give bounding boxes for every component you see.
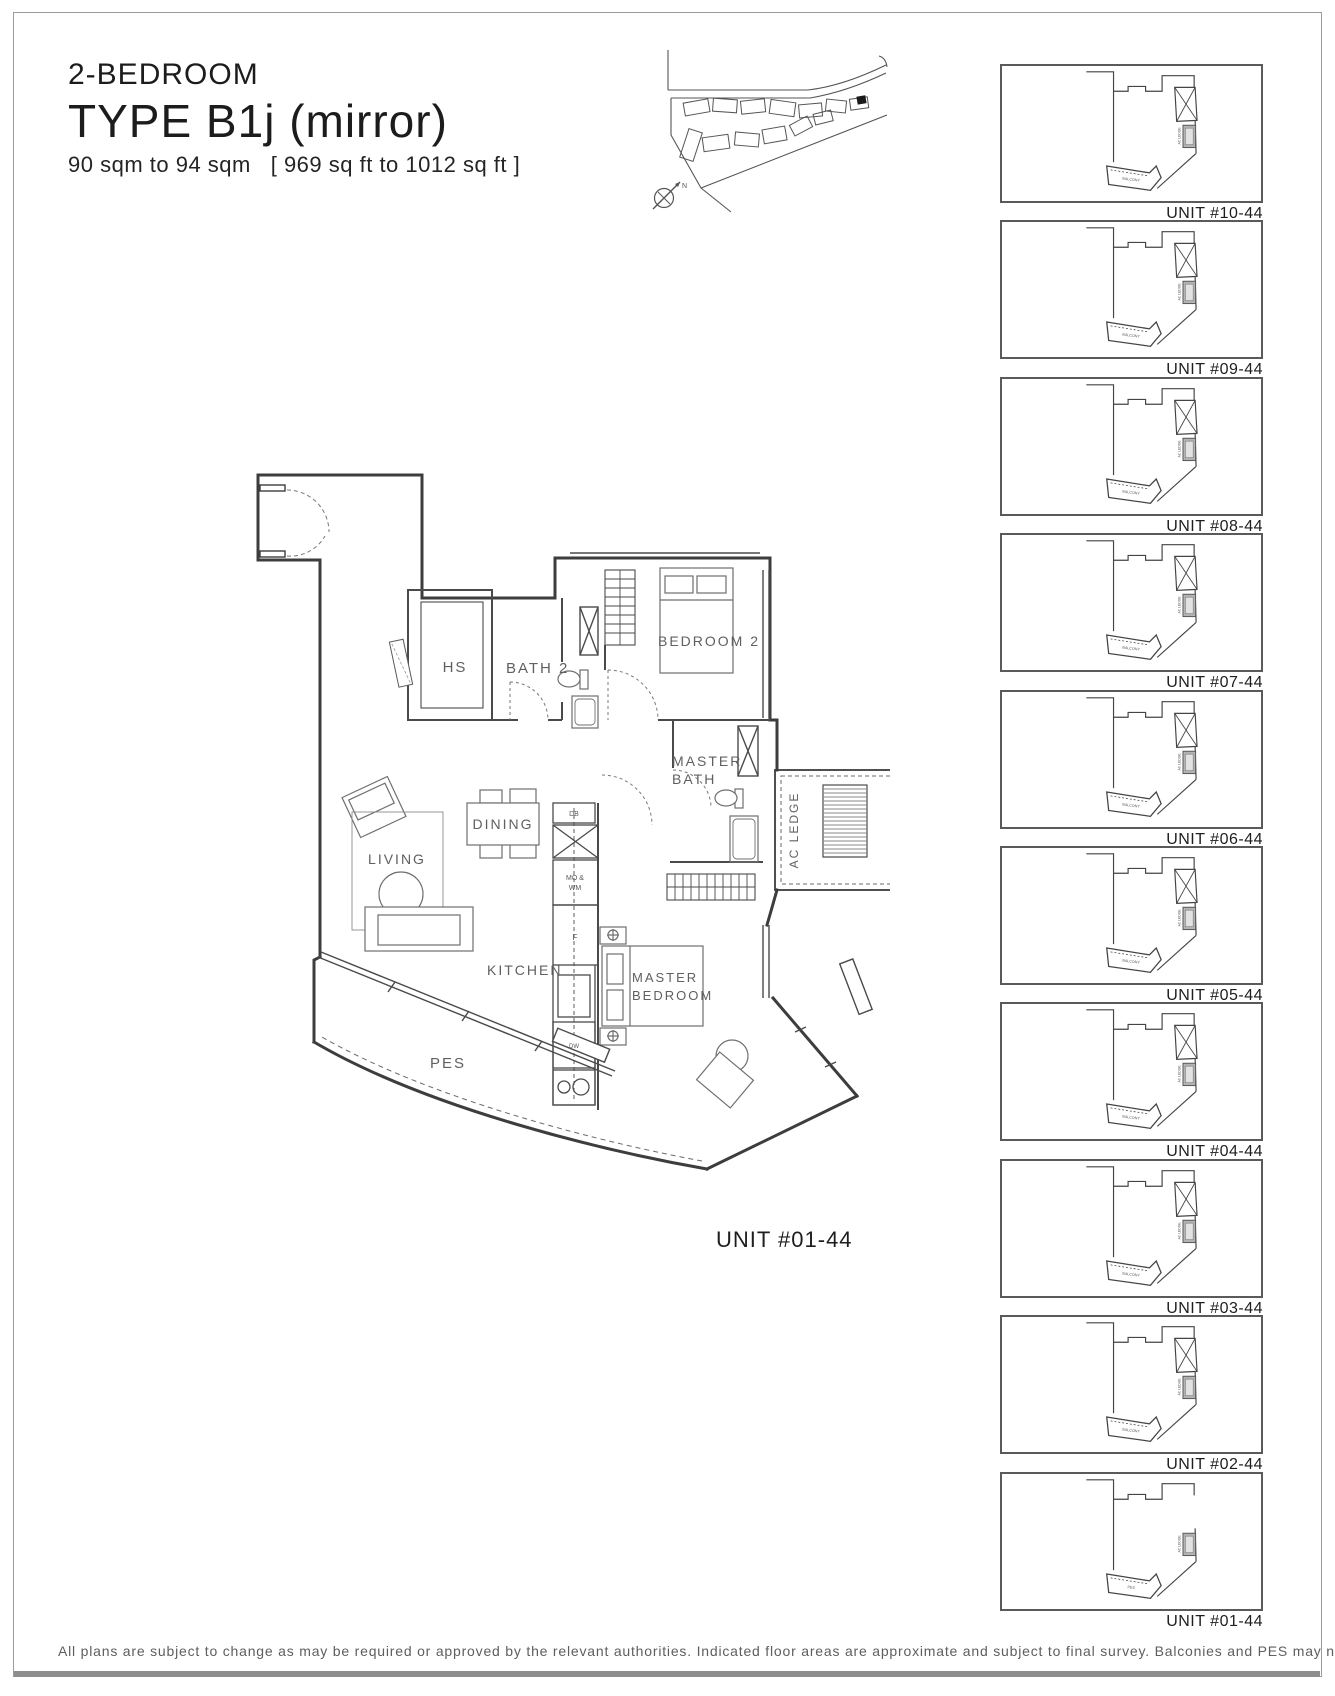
room-label-master-bath-1: MASTER xyxy=(672,753,742,769)
unit-area: 90 sqm to 94 sqm [ 969 sq ft to 1012 sq … xyxy=(68,152,520,178)
thumb-ac-label: AC LEDGE xyxy=(1178,1221,1182,1239)
thumb-balcony-label: BALCONY xyxy=(1122,489,1141,495)
thumb-balcony-label: BALCONY xyxy=(1122,1271,1141,1277)
key-plan-box: AC LEDGE PES xyxy=(1000,1472,1263,1611)
thumb-ac-label: AC LEDGE xyxy=(1178,127,1182,145)
key-plan-box: AC LEDGE BALCONY xyxy=(1000,690,1263,829)
key-plan-box: AC LEDGE BALCONY xyxy=(1000,220,1263,359)
key-plan-box: AC LEDGE BALCONY xyxy=(1000,377,1263,516)
entry-door xyxy=(260,485,329,557)
area-imperial: [ 969 sq ft to 1012 sq ft ] xyxy=(271,152,521,177)
thumb-balcony-label: BALCONY xyxy=(1122,1115,1141,1121)
exterior-walls xyxy=(258,475,857,1169)
unit-key-plan-column: AC LEDGE BALCONY UNIT #10-44 xyxy=(1000,64,1263,1628)
thumb-balcony-label: BALCONY xyxy=(1122,646,1141,652)
area-metric: 90 sqm to 94 sqm xyxy=(68,152,251,177)
key-plan-drawing: AC LEDGE BALCONY xyxy=(1002,66,1261,201)
lift-core-icon xyxy=(1175,1338,1197,1372)
unit-type-title: TYPE B1j (mirror) xyxy=(68,94,520,148)
main-unit-label: UNIT #01-44 xyxy=(716,1227,853,1253)
svg-text:N: N xyxy=(682,183,687,190)
thumb-ac-label: AC LEDGE xyxy=(1178,439,1182,457)
disclaimer-text: All plans are subject to change as may b… xyxy=(58,1643,1308,1659)
north-compass-icon: N xyxy=(653,182,687,209)
room-label-pes: PES xyxy=(430,1055,466,1072)
thumb-ac-label: AC LEDGE xyxy=(1178,283,1182,301)
thumbnail-unit-label: UNIT #01-44 xyxy=(1000,1613,1263,1630)
appliance-label-dw: DW xyxy=(569,1044,579,1050)
main-floor-plan: HS BATH 2 BEDROOM 2 MASTER BATH AC LEDGE… xyxy=(230,430,890,1190)
unit-thumbnail: AC LEDGE BALCONY UNIT #09-44 xyxy=(1000,220,1263,376)
room-label-bath2: BATH 2 xyxy=(506,660,569,677)
thumb-balcony-label: PES xyxy=(1127,1585,1135,1590)
lift-core-icon xyxy=(1175,87,1197,121)
unit-thumbnail: AC LEDGE BALCONY UNIT #08-44 xyxy=(1000,377,1263,533)
lift-core-icon xyxy=(1175,244,1197,278)
key-plan-box: AC LEDGE BALCONY xyxy=(1000,1315,1263,1454)
hs-door xyxy=(389,639,412,687)
pes-doors xyxy=(553,959,873,1062)
room-label-master-bedroom-1: MASTER xyxy=(632,970,698,985)
kitchen-column xyxy=(553,803,598,1105)
unit-thumbnail: AC LEDGE BALCONY UNIT #10-44 xyxy=(1000,64,1263,220)
key-plan-box: AC LEDGE BALCONY xyxy=(1000,533,1263,672)
lift-core-icon xyxy=(1175,1182,1197,1216)
key-plan-box: AC LEDGE BALCONY xyxy=(1000,64,1263,203)
appliance-label-db: DB xyxy=(569,811,579,818)
unit-thumbnail: AC LEDGE BALCONY UNIT #02-44 xyxy=(1000,1315,1263,1471)
key-plan-drawing: AC LEDGE BALCONY xyxy=(1002,1161,1261,1296)
key-plan-drawing: AC LEDGE BALCONY xyxy=(1002,1004,1261,1139)
thumb-ac-label: AC LEDGE xyxy=(1178,909,1182,927)
key-plan-box: AC LEDGE BALCONY xyxy=(1000,1159,1263,1298)
unit-thumbnail: AC LEDGE PES UNIT #01-44 xyxy=(1000,1472,1263,1628)
title-block: 2-BEDROOM TYPE B1j (mirror) 90 sqm to 94… xyxy=(68,58,520,178)
room-label-kitchen: KITCHEN xyxy=(487,962,562,978)
key-plan-drawing: AC LEDGE BALCONY xyxy=(1002,848,1261,983)
site-buildings xyxy=(680,97,869,162)
appliance-label-mo-wm-1: MO & xyxy=(566,875,584,882)
lift-core-icon xyxy=(1175,869,1197,903)
thumb-balcony-label: BALCONY xyxy=(1122,802,1141,808)
thumb-ac-label: AC LEDGE xyxy=(1178,1378,1182,1396)
room-label-master-bath-2: BATH xyxy=(672,771,716,787)
unit-category: 2-BEDROOM xyxy=(68,58,520,92)
thumb-ac-label: AC LEDGE xyxy=(1178,752,1182,770)
lift-core-icon xyxy=(1175,557,1197,591)
key-plan-box: AC LEDGE BALCONY xyxy=(1000,1002,1263,1141)
room-label-bedroom2: BEDROOM 2 xyxy=(658,633,760,649)
site-location-map: N xyxy=(598,38,890,214)
key-plan-drawing: AC LEDGE BALCONY xyxy=(1002,692,1261,827)
thumb-balcony-label: BALCONY xyxy=(1122,1428,1141,1434)
unit-thumbnail: AC LEDGE BALCONY UNIT #05-44 xyxy=(1000,846,1263,1002)
unit-thumbnail: AC LEDGE BALCONY UNIT #07-44 xyxy=(1000,533,1263,689)
lift-core-icon xyxy=(1175,1026,1197,1060)
unit-thumbnail: AC LEDGE BALCONY UNIT #03-44 xyxy=(1000,1159,1263,1315)
lift-core-icon xyxy=(1175,400,1197,434)
key-plan-drawing: AC LEDGE PES xyxy=(1002,1474,1261,1609)
appliance-label-mo-wm-2: WM xyxy=(569,885,582,892)
thumb-balcony-label: BALCONY xyxy=(1122,177,1141,183)
room-label-dining: DINING xyxy=(473,816,534,832)
key-plan-box: AC LEDGE BALCONY xyxy=(1000,846,1263,985)
footer-bar xyxy=(14,1671,1320,1677)
room-label-ac-ledge: AC LEDGE xyxy=(787,792,801,869)
room-label-master-bedroom-2: BEDROOM xyxy=(632,988,713,1003)
room-label-hs: HS xyxy=(443,659,468,676)
unit-thumbnail: AC LEDGE BALCONY UNIT #04-44 xyxy=(1000,1002,1263,1158)
key-plan-drawing: AC LEDGE BALCONY xyxy=(1002,1317,1261,1452)
thumb-balcony-label: BALCONY xyxy=(1122,959,1141,965)
lift-core-icon xyxy=(1175,713,1197,747)
subject-site-marker xyxy=(856,95,866,104)
floorplan-brochure-page: 2-BEDROOM TYPE B1j (mirror) 90 sqm to 94… xyxy=(0,0,1335,1696)
key-plan-drawing: AC LEDGE BALCONY xyxy=(1002,222,1261,357)
thumb-ac-label: AC LEDGE xyxy=(1178,1065,1182,1083)
thumb-balcony-label: BALCONY xyxy=(1122,333,1141,339)
appliance-label-f: F xyxy=(573,933,578,942)
thumb-ac-label: AC LEDGE xyxy=(1178,596,1182,614)
door-swings xyxy=(510,670,711,825)
unit-thumbnail: AC LEDGE BALCONY UNIT #06-44 xyxy=(1000,690,1263,846)
key-plan-drawing: AC LEDGE BALCONY xyxy=(1002,379,1261,514)
room-label-living: LIVING xyxy=(368,851,426,867)
key-plan-drawing: AC LEDGE BALCONY xyxy=(1002,535,1261,670)
thumb-ac-label: AC LEDGE xyxy=(1178,1534,1182,1552)
